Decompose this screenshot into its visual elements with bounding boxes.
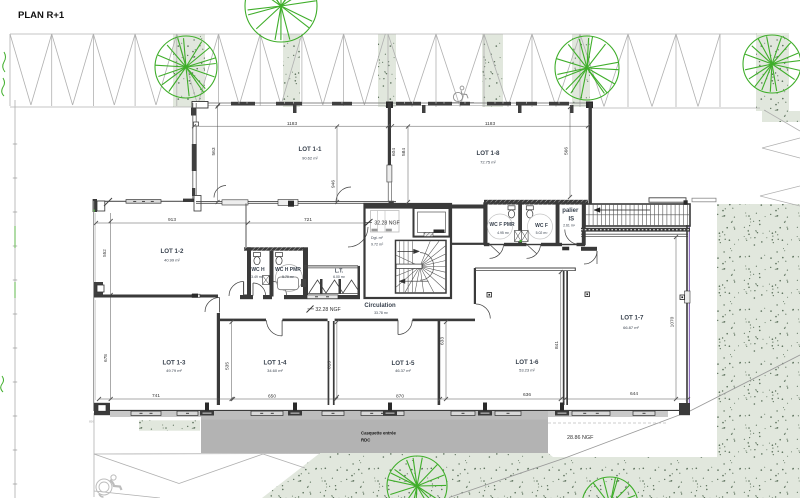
svg-text:palier: palier — [562, 208, 579, 214]
svg-text:46.37 m²: 46.37 m² — [395, 368, 411, 373]
svg-text:636: 636 — [523, 392, 531, 398]
svg-text:2.61 m²: 2.61 m² — [563, 224, 576, 228]
svg-text:32.28 NGF: 32.28 NGF — [374, 221, 399, 227]
svg-text:3.49 m²: 3.49 m² — [251, 275, 264, 279]
svg-text:5.02 m²: 5.02 m² — [536, 231, 549, 235]
svg-text:1183: 1183 — [287, 121, 298, 127]
svg-text:LOT 1-6: LOT 1-6 — [515, 359, 539, 366]
svg-text:6.00 m²: 6.00 m² — [333, 275, 346, 279]
svg-text:678: 678 — [103, 354, 108, 362]
svg-text:Circulation: Circulation — [364, 303, 396, 309]
svg-text:741: 741 — [152, 393, 160, 399]
svg-text:WC H: WC H — [251, 267, 265, 273]
svg-text:28.86 NGF: 28.86 NGF — [567, 435, 594, 441]
svg-text:650: 650 — [268, 394, 276, 400]
svg-text:LOT 1-7: LOT 1-7 — [620, 315, 644, 322]
svg-text:633: 633 — [440, 337, 446, 345]
svg-text:RDC: RDC — [361, 438, 370, 443]
svg-text:LOT 1-2: LOT 1-2 — [160, 248, 184, 255]
svg-text:584: 584 — [401, 148, 407, 156]
svg-text:613: 613 — [327, 361, 333, 369]
svg-text:5.79 m²: 5.79 m² — [282, 275, 295, 279]
svg-text:535: 535 — [224, 362, 230, 370]
svg-text:LOT 1-3: LOT 1-3 — [162, 360, 186, 367]
svg-text:90.62 m²: 90.62 m² — [302, 156, 318, 161]
svg-text:1183: 1183 — [485, 121, 496, 127]
svg-text:552: 552 — [102, 249, 107, 257]
svg-text:Casquette entrée: Casquette entrée — [361, 431, 396, 436]
svg-text:40.99 m²: 40.99 m² — [164, 258, 180, 263]
svg-text:IS: IS — [568, 217, 574, 223]
svg-text:Dgt. m²: Dgt. m² — [371, 236, 384, 240]
svg-text:WC F PMR: WC F PMR — [489, 222, 515, 228]
svg-text:913: 913 — [168, 217, 176, 223]
svg-text:53.23 m²: 53.23 m² — [519, 368, 535, 373]
svg-text:870: 870 — [396, 394, 404, 400]
svg-text:66.87 m²: 66.87 m² — [623, 325, 639, 330]
svg-text:946: 946 — [331, 180, 337, 188]
svg-text:34.60 m²: 34.60 m² — [267, 368, 283, 373]
svg-text:856: 856 — [89, 420, 94, 424]
svg-text:WC F: WC F — [535, 223, 548, 229]
svg-text:72.75 m²: 72.75 m² — [480, 160, 496, 165]
svg-text:LOT 1-1: LOT 1-1 — [298, 146, 322, 153]
svg-text:LOT 1-5: LOT 1-5 — [391, 360, 415, 367]
svg-text:32.28 NGF: 32.28 NGF — [315, 307, 340, 313]
svg-text:33.78 m²: 33.78 m² — [374, 311, 389, 315]
svg-text:563: 563 — [211, 147, 217, 155]
svg-text:4.95 m²: 4.95 m² — [497, 231, 510, 235]
svg-text:WC H PMR: WC H PMR — [275, 267, 301, 273]
svg-text:9.72 m²: 9.72 m² — [371, 243, 384, 247]
svg-text:644: 644 — [630, 391, 638, 397]
svg-text:566: 566 — [564, 147, 570, 155]
svg-text:L.T.: L.T. — [335, 269, 344, 275]
svg-text:604: 604 — [391, 148, 397, 156]
svg-text:LOT 1-8: LOT 1-8 — [476, 150, 500, 157]
svg-text:1070: 1070 — [670, 316, 676, 327]
svg-text:LOT 1-4: LOT 1-4 — [263, 360, 287, 367]
svg-text:721: 721 — [304, 217, 312, 223]
svg-text:49.79 m²: 49.79 m² — [166, 368, 182, 373]
svg-text:PLAN R+1: PLAN R+1 — [18, 10, 65, 21]
svg-text:841: 841 — [554, 341, 560, 349]
